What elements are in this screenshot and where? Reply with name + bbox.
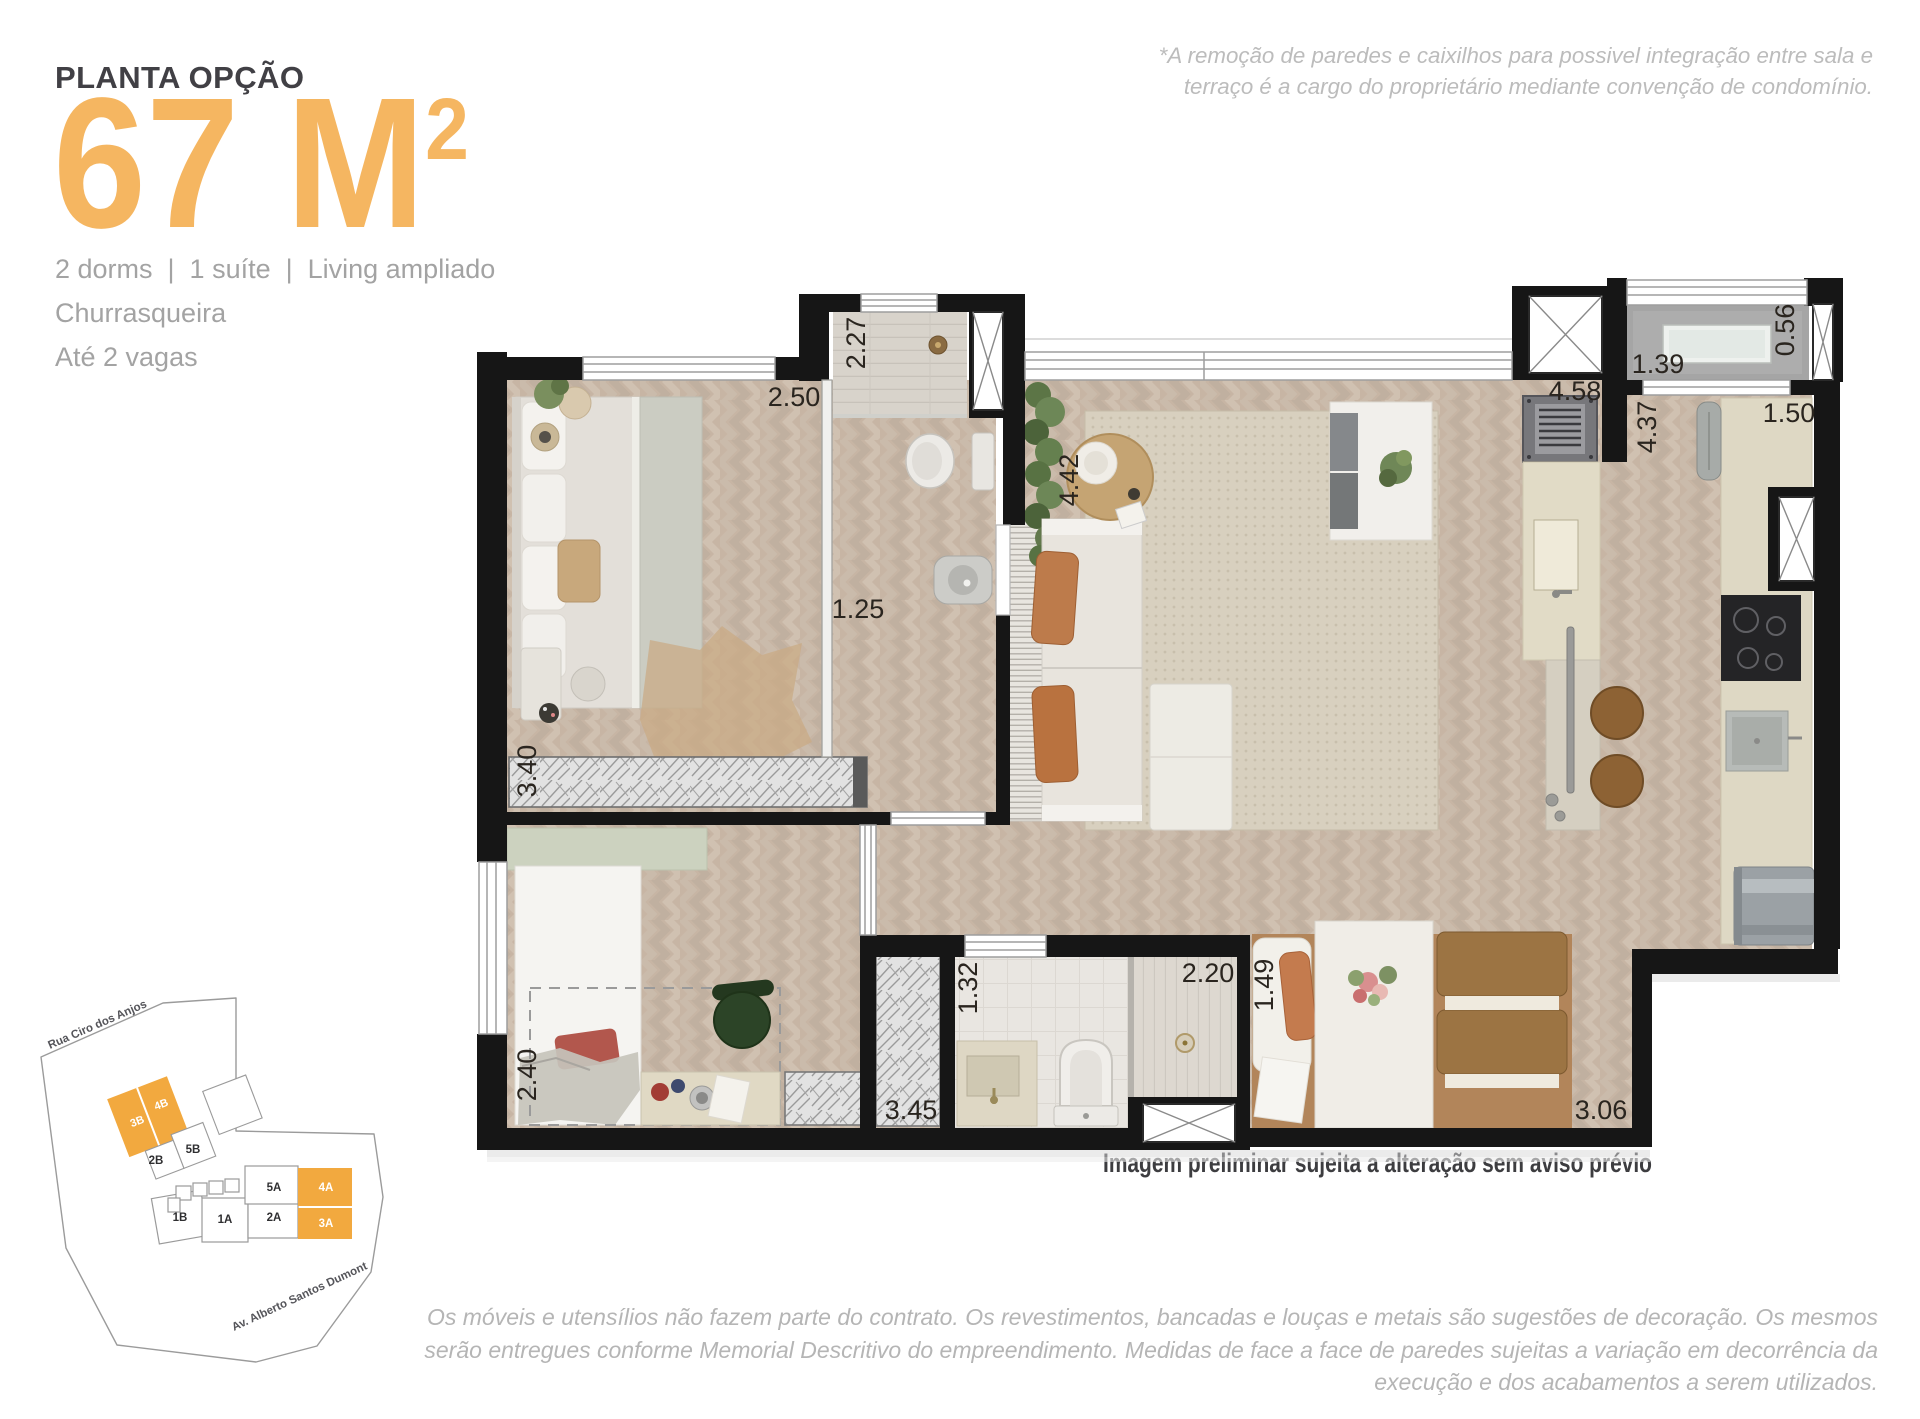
svg-text:2.40: 2.40	[512, 1049, 542, 1102]
svg-text:2A: 2A	[267, 1212, 282, 1224]
svg-text:2.50: 2.50	[768, 382, 821, 412]
svg-text:1.32: 1.32	[953, 962, 983, 1015]
svg-text:3.06: 3.06	[1575, 1095, 1628, 1125]
svg-text:3.40: 3.40	[512, 745, 542, 798]
svg-text:3.45: 3.45	[885, 1095, 938, 1125]
svg-text:1.25: 1.25	[832, 594, 885, 624]
svg-text:2.20: 2.20	[1182, 958, 1235, 988]
svg-text:1.50: 1.50	[1763, 398, 1816, 428]
svg-text:5B: 5B	[186, 1144, 201, 1156]
svg-text:4.42: 4.42	[1054, 454, 1084, 507]
svg-text:1B: 1B	[173, 1212, 188, 1224]
svg-text:2B: 2B	[149, 1155, 164, 1167]
svg-text:1.49: 1.49	[1249, 959, 1279, 1012]
svg-text:5A: 5A	[267, 1182, 282, 1194]
svg-text:4.58: 4.58	[1549, 376, 1602, 406]
svg-text:2.27: 2.27	[841, 317, 871, 370]
svg-text:4.37: 4.37	[1632, 401, 1662, 454]
svg-text:4A: 4A	[319, 1182, 334, 1194]
svg-text:0.56: 0.56	[1770, 304, 1800, 357]
svg-text:1A: 1A	[218, 1214, 233, 1226]
svg-text:1.39: 1.39	[1632, 349, 1685, 379]
svg-text:3A: 3A	[319, 1218, 334, 1230]
